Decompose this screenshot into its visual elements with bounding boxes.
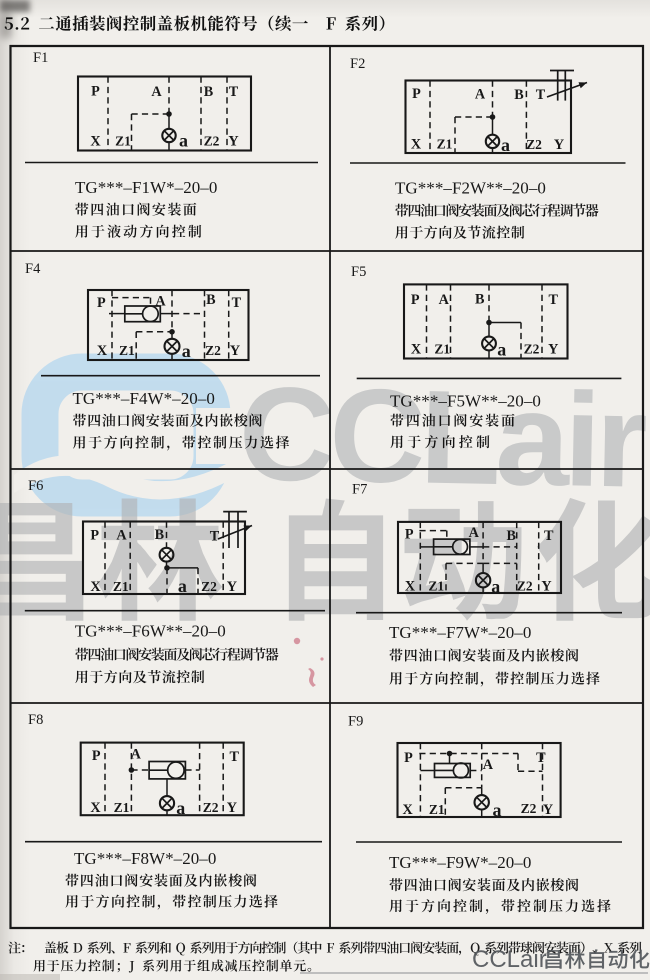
svg-text:P: P	[411, 292, 420, 308]
svg-text:Y: Y	[227, 800, 237, 816]
svg-text:T: T	[232, 295, 242, 311]
svg-text:Y: Y	[230, 343, 240, 359]
svg-text:a: a	[179, 130, 188, 150]
svg-text:CCLair: CCLair	[237, 360, 647, 516]
svg-text:X: X	[411, 136, 422, 152]
svg-text:CCLair: CCLair	[472, 946, 547, 973]
svg-text:a: a	[178, 576, 187, 596]
svg-text:A: A	[151, 84, 162, 100]
svg-text:Z1: Z1	[437, 136, 453, 151]
svg-text:TG***–F1W*–20–0: TG***–F1W*–20–0	[75, 178, 217, 197]
svg-text:X: X	[402, 802, 413, 818]
svg-text:Z2: Z2	[526, 137, 542, 152]
svg-text:P: P	[404, 750, 413, 766]
svg-text:F7: F7	[352, 482, 367, 498]
svg-text:Y: Y	[548, 342, 558, 358]
svg-text:Z2: Z2	[201, 579, 217, 594]
svg-text:A: A	[155, 293, 166, 309]
svg-text:Z1: Z1	[115, 133, 131, 148]
svg-text:X: X	[90, 133, 101, 149]
svg-text:X: X	[90, 579, 101, 595]
svg-text:T: T	[536, 750, 546, 766]
svg-text:Z2: Z2	[204, 133, 220, 148]
svg-text:Z1: Z1	[429, 802, 445, 817]
svg-text:TG***–F9W*–20–0: TG***–F9W*–20–0	[389, 853, 531, 872]
svg-text:F6: F6	[28, 478, 43, 494]
svg-text:Z2: Z2	[521, 801, 537, 816]
svg-text:TG***–F2W**–20–0: TG***–F2W**–20–0	[395, 179, 546, 198]
svg-text:Z1: Z1	[114, 800, 130, 815]
svg-text:X: X	[405, 578, 416, 594]
svg-text:P: P	[97, 295, 106, 311]
svg-text:a: a	[182, 341, 191, 361]
svg-text:B: B	[206, 292, 216, 308]
svg-text:Z2: Z2	[205, 343, 221, 358]
svg-text:P: P	[405, 527, 414, 543]
svg-text:A: A	[439, 292, 450, 308]
svg-text:Y: Y	[541, 578, 551, 594]
svg-text:T: T	[229, 84, 239, 100]
svg-text:Y: Y	[227, 579, 237, 595]
svg-text:TG***–F7W*–20–0: TG***–F7W*–20–0	[389, 623, 531, 642]
svg-text:A: A	[475, 86, 486, 102]
svg-text:F8: F8	[28, 712, 43, 728]
svg-text:F2: F2	[350, 56, 365, 72]
svg-text:a: a	[491, 576, 500, 596]
svg-text:B: B	[155, 527, 165, 543]
svg-text:Z1: Z1	[428, 578, 444, 593]
svg-text:Z2: Z2	[203, 800, 219, 815]
svg-text:A: A	[116, 528, 127, 544]
svg-text:B: B	[204, 84, 214, 100]
svg-text:Y: Y	[543, 802, 553, 818]
svg-text:P: P	[90, 528, 99, 544]
svg-text:Z2: Z2	[517, 578, 533, 593]
svg-text:A: A	[469, 525, 480, 541]
svg-text:A: A	[483, 757, 494, 773]
svg-text:T: T	[210, 529, 220, 545]
svg-text:Z1: Z1	[113, 579, 129, 594]
svg-text:Z1: Z1	[119, 343, 135, 358]
svg-text:a: a	[493, 800, 502, 820]
svg-text:T: T	[548, 292, 558, 308]
svg-text:P: P	[91, 83, 100, 99]
svg-text:X: X	[97, 343, 108, 359]
svg-text:P: P	[92, 748, 101, 764]
svg-text:a: a	[497, 340, 506, 360]
svg-text:T: T	[229, 749, 239, 765]
svg-text:TG***–F6W**–20–0: TG***–F6W**–20–0	[75, 622, 226, 641]
svg-text:X: X	[411, 342, 422, 358]
svg-text:TG***–F4W*–20–0: TG***–F4W*–20–0	[73, 389, 215, 408]
svg-text:T: T	[544, 528, 554, 544]
svg-text:F5: F5	[351, 264, 366, 280]
svg-text:X: X	[90, 800, 101, 816]
svg-text:TG***–F8W*–20–0: TG***–F8W*–20–0	[74, 849, 216, 868]
svg-text:B: B	[506, 528, 516, 544]
svg-text:Y: Y	[554, 137, 564, 153]
svg-text:F4: F4	[25, 261, 41, 277]
svg-text:Z1: Z1	[434, 342, 450, 357]
svg-text:F9: F9	[348, 714, 363, 730]
svg-text:B: B	[475, 291, 485, 307]
svg-text:TG***–F5W**–20–0: TG***–F5W**–20–0	[390, 392, 541, 411]
svg-text:A: A	[131, 746, 142, 762]
svg-text:F1: F1	[33, 50, 48, 66]
svg-text:a: a	[176, 798, 185, 818]
svg-text:Y: Y	[228, 133, 238, 149]
svg-text:a: a	[501, 135, 510, 155]
svg-text:P: P	[412, 86, 421, 102]
svg-text:T: T	[536, 87, 546, 103]
svg-text:Z2: Z2	[524, 342, 540, 357]
svg-text:B: B	[514, 87, 524, 103]
